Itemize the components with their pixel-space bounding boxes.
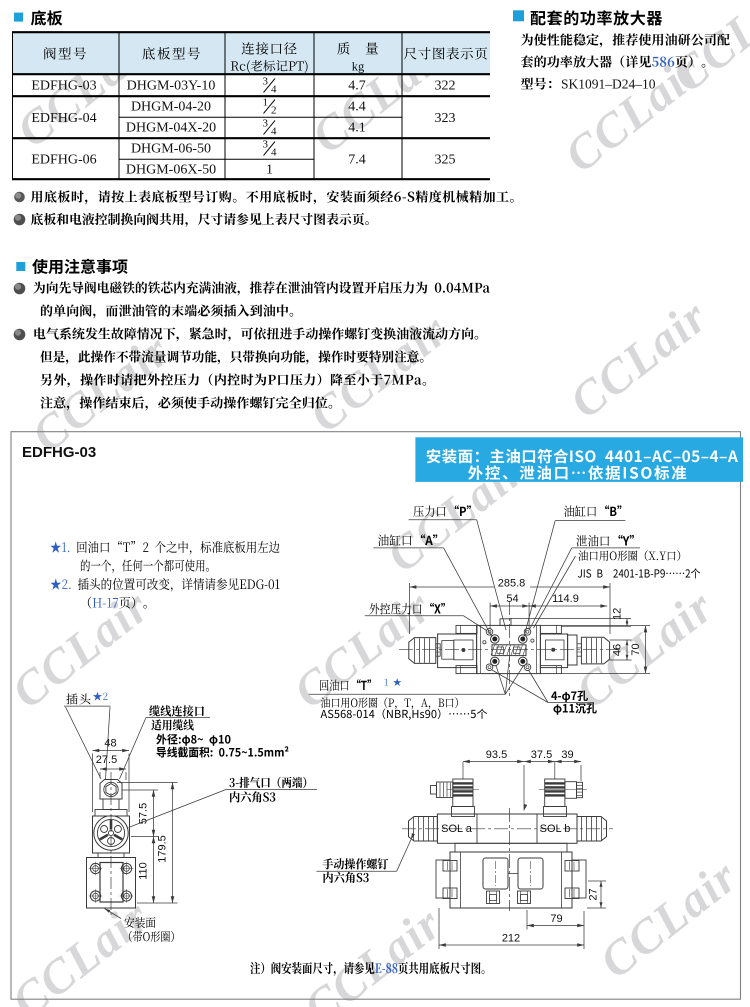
svg-text:2: 2 [271,105,277,117]
svg-text:325: 325 [435,153,456,168]
svg-text:EDFHG-03: EDFHG-03 [31,79,96,94]
svg-text:322: 322 [435,79,456,94]
svg-text:48: 48 [104,738,116,750]
svg-text:179.5: 179.5 [157,835,169,863]
svg-text:SOL b: SOL b [540,823,571,835]
svg-text:4.7: 4.7 [348,79,366,94]
svg-text:27: 27 [588,888,600,900]
svg-text:4: 4 [271,147,277,159]
svg-text:114.9: 114.9 [552,593,579,605]
svg-text:DHGM-04-20: DHGM-04-20 [131,100,211,115]
svg-text:1: 1 [266,163,273,178]
svg-text:7.4: 7.4 [348,153,366,168]
svg-text:3: 3 [263,139,269,151]
svg-text:SK1091–D24–10: SK1091–D24–10 [561,77,656,92]
svg-text:1: 1 [263,97,269,109]
svg-text:kg: kg [352,60,365,74]
svg-text:37.5: 37.5 [531,749,552,761]
svg-text:EDFHG-04: EDFHG-04 [31,111,96,126]
svg-text:46: 46 [612,644,624,656]
svg-text:12: 12 [612,608,624,620]
svg-text:39: 39 [561,749,573,761]
svg-text:3: 3 [263,118,269,130]
svg-text:EDFHG-06: EDFHG-06 [31,153,96,168]
svg-text:285.8: 285.8 [498,577,526,589]
svg-text:4.1: 4.1 [348,121,366,136]
svg-text:4: 4 [271,84,277,96]
svg-text:3: 3 [263,76,269,88]
svg-text:4: 4 [271,126,277,138]
svg-text:DHGM-06-50: DHGM-06-50 [131,142,211,157]
svg-text:DHGM-04X-20: DHGM-04X-20 [126,121,216,136]
svg-text:54: 54 [506,593,518,605]
svg-text:57.5: 57.5 [138,803,150,824]
svg-text:27.5: 27.5 [96,754,117,766]
svg-text:93.5: 93.5 [486,749,507,761]
svg-text:DHGM-06X-50: DHGM-06X-50 [126,163,216,178]
svg-text:110: 110 [138,862,150,880]
svg-text:EDFHG-03: EDFHG-03 [22,444,96,461]
svg-text:DHGM-03Y-10: DHGM-03Y-10 [127,79,216,94]
svg-text:212: 212 [502,933,520,945]
svg-text:4.4: 4.4 [348,100,366,115]
svg-text:70: 70 [630,643,642,655]
svg-text:SOL a: SOL a [441,823,473,835]
svg-text:79: 79 [550,913,562,925]
svg-text:323: 323 [435,111,456,126]
